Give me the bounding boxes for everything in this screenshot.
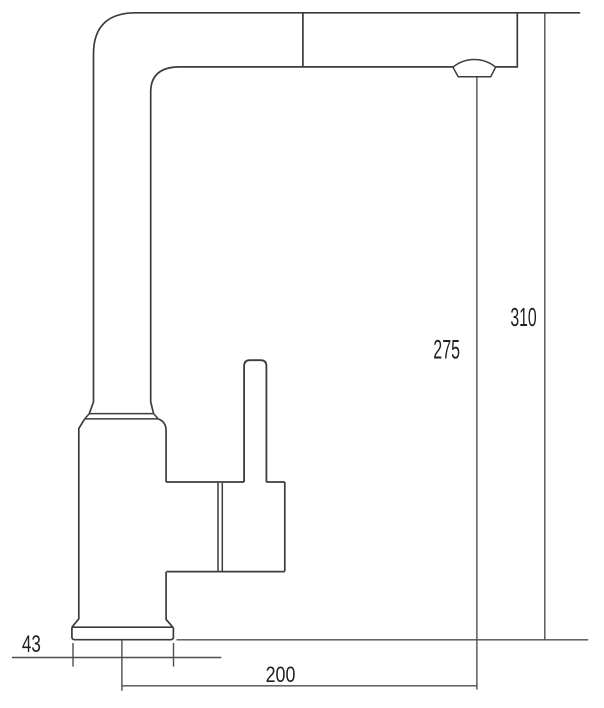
svg-text:275: 275: [433, 335, 460, 365]
svg-text:43: 43: [22, 631, 41, 658]
svg-text:310: 310: [510, 302, 536, 332]
svg-text:200: 200: [266, 662, 296, 687]
